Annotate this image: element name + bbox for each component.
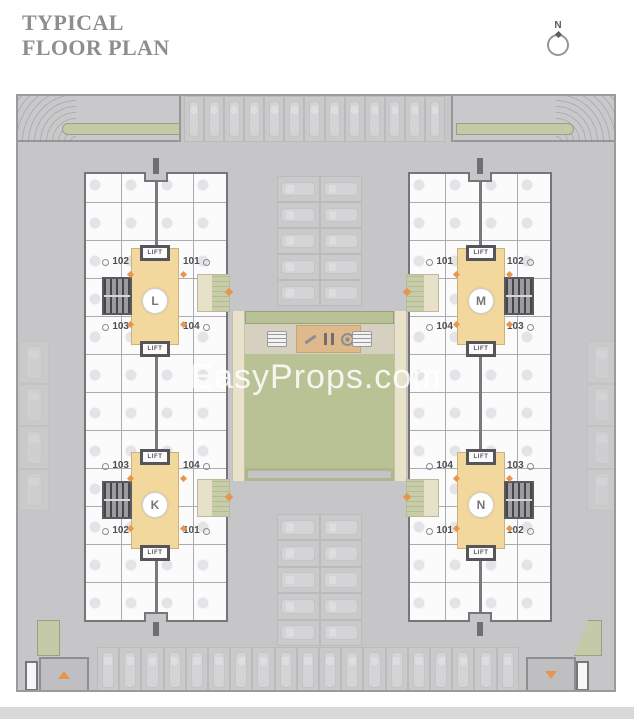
- green-strip-bottom-right: [574, 620, 602, 656]
- parking-stall: [320, 620, 363, 646]
- parking-stall: [474, 647, 496, 692]
- car-icon: [409, 101, 420, 138]
- parking-stall: [320, 202, 363, 228]
- car-icon: [435, 652, 447, 689]
- unit-number: 101: [183, 526, 225, 536]
- fixture-icon: [203, 528, 210, 535]
- car-icon: [289, 101, 300, 138]
- car-icon: [346, 652, 358, 689]
- fixture-icon: [426, 259, 433, 266]
- parking-stall: [497, 647, 519, 692]
- car-icon: [594, 431, 610, 464]
- parking-stall: [119, 647, 141, 692]
- parking-stall: [320, 514, 363, 540]
- car-icon: [257, 652, 269, 689]
- parking-stall: [19, 469, 49, 512]
- lift-box: LIFT: [466, 545, 496, 561]
- car-icon: [102, 652, 114, 689]
- parking-stall: [325, 96, 345, 142]
- car-icon: [480, 652, 492, 689]
- car-icon: [391, 652, 403, 689]
- car-icon: [430, 101, 441, 138]
- ramp-top-right: [451, 96, 614, 142]
- staircase-icon: [102, 277, 132, 315]
- green-strip-bottom-left: [37, 620, 60, 656]
- swing-icon: [324, 333, 334, 345]
- car-icon: [324, 599, 358, 614]
- car-icon: [209, 101, 220, 138]
- unit-number: 103: [87, 322, 129, 332]
- car-icon: [324, 260, 358, 275]
- parking-stall: [320, 593, 363, 619]
- unit-number: 104: [411, 461, 453, 471]
- car-icon: [26, 431, 42, 464]
- car-icon: [329, 101, 340, 138]
- ramp-arcs-icon: [18, 96, 76, 142]
- parking-stall: [345, 96, 365, 142]
- tower-letter: M: [476, 294, 486, 308]
- parking-stall: [277, 202, 320, 228]
- lift-label: LIFT: [147, 454, 162, 460]
- car-icon: [309, 101, 320, 138]
- car-icon: [324, 572, 358, 587]
- unit-number: 102: [87, 526, 129, 536]
- parking-stall: [97, 647, 119, 692]
- parking-grid-lower: [277, 514, 362, 646]
- unit-number: 101: [183, 257, 225, 267]
- watermark: EasyProps.com: [18, 358, 614, 397]
- lift-label: LIFT: [473, 346, 488, 352]
- car-icon: [281, 260, 315, 275]
- car-icon: [281, 625, 315, 640]
- green-walkway-top-left: [62, 123, 180, 135]
- unit-number: 104: [183, 461, 225, 471]
- car-icon: [281, 182, 315, 197]
- fixture-icon: [102, 463, 109, 470]
- car-icon: [594, 473, 610, 506]
- lift-label: LIFT: [147, 250, 162, 256]
- tower-letter: L: [151, 294, 158, 308]
- fixture-icon: [102, 324, 109, 331]
- car-icon: [389, 101, 400, 138]
- unit-number: 104: [183, 322, 225, 332]
- staircase-icon: [504, 481, 534, 519]
- unit-number: 104: [411, 322, 453, 332]
- parking-stall: [430, 647, 452, 692]
- car-icon: [324, 182, 358, 197]
- parking-stall: [208, 647, 230, 692]
- entrance-stub: [477, 622, 483, 636]
- parking-stall: [385, 96, 405, 142]
- fixture-icon: [426, 528, 433, 535]
- parking-stall: [141, 647, 163, 692]
- lift-box: LIFT: [140, 449, 170, 465]
- play-area: [245, 324, 394, 354]
- lift-box: LIFT: [140, 341, 170, 357]
- tower-badge: L: [142, 288, 168, 314]
- footer-band: [0, 707, 634, 719]
- parking-stall: [277, 620, 320, 646]
- title-line2: FLOOR PLAN: [22, 35, 170, 60]
- parking-column: [277, 514, 320, 646]
- entry-arrow-up-icon: [58, 671, 70, 679]
- parking-stall: [252, 647, 274, 692]
- parking-stall: [277, 254, 320, 280]
- parking-grid-upper: [277, 176, 362, 306]
- door-marker-icon: [180, 271, 187, 278]
- unit-number: 102: [87, 257, 129, 267]
- fixture-icon: [102, 259, 109, 266]
- car-icon: [26, 473, 42, 506]
- parking-stall: [320, 567, 363, 593]
- car-icon: [269, 101, 280, 138]
- parking-stall: [587, 469, 616, 512]
- car-icon: [213, 652, 225, 689]
- page-title: TYPICAL FLOOR PLAN: [22, 10, 170, 60]
- parking-stall: [204, 96, 224, 142]
- parking-stall: [184, 96, 204, 142]
- gate-post: [576, 661, 589, 691]
- parking-stall: [284, 96, 304, 142]
- fixture-icon: [102, 528, 109, 535]
- fixture-icon: [426, 463, 433, 470]
- courtyard-walkway-bottom: [245, 468, 394, 481]
- parking-stall: [341, 647, 363, 692]
- parking-stall: [244, 96, 264, 142]
- tower-core-K: LIFT LIFT K 103 104 102 101: [84, 448, 228, 562]
- car-icon: [281, 546, 315, 561]
- lift-box: LIFT: [466, 245, 496, 261]
- car-icon: [281, 599, 315, 614]
- fixture-icon: [203, 324, 210, 331]
- parking-stall: [320, 280, 363, 306]
- ramp-top-left: [18, 96, 181, 142]
- floor-plan-page: TYPICAL FLOOR PLAN N: [0, 0, 634, 719]
- tower-core-N: LIFT LIFT N 104 103 101 102: [408, 448, 552, 562]
- car-icon: [349, 101, 360, 138]
- car-icon: [146, 652, 158, 689]
- courtyard-walkway-top: [245, 311, 394, 324]
- car-icon: [324, 520, 358, 535]
- parking-stall: [277, 228, 320, 254]
- parking-stall: [365, 96, 385, 142]
- parking-row-bottom: [97, 647, 519, 692]
- parking-stall: [320, 176, 363, 202]
- parking-stall: [164, 647, 186, 692]
- staircase-icon: [504, 277, 534, 315]
- parking-stall: [408, 647, 430, 692]
- tower-badge: N: [468, 492, 494, 518]
- parking-stall: [277, 176, 320, 202]
- lift-box: LIFT: [140, 245, 170, 261]
- bench-icon: [352, 331, 372, 347]
- parking-stall: [19, 426, 49, 469]
- car-icon: [191, 652, 203, 689]
- car-icon: [324, 625, 358, 640]
- parking-stall: [452, 647, 474, 692]
- car-icon: [457, 652, 469, 689]
- car-icon: [281, 234, 315, 249]
- parking-stall: [363, 647, 385, 692]
- unit-number: 101: [411, 526, 453, 536]
- title-line1: TYPICAL: [22, 10, 170, 35]
- tower-core-M: LIFT LIFT M 101 102 104 103: [408, 244, 552, 358]
- parking-stall: [320, 228, 363, 254]
- car-icon: [281, 208, 315, 223]
- fixture-icon: [426, 324, 433, 331]
- car-icon: [281, 520, 315, 535]
- parking-row-top: [184, 96, 445, 142]
- tower-letter: N: [477, 498, 486, 512]
- fixture-icon: [203, 259, 210, 266]
- fixture-icon: [203, 463, 210, 470]
- parking-stall: [425, 96, 445, 142]
- parking-stall: [277, 567, 320, 593]
- parking-stall: [320, 254, 363, 280]
- parking-stall: [230, 647, 252, 692]
- tower-core-L: LIFT LIFT L 102 101 103 104: [84, 244, 228, 358]
- parking-stall: [304, 96, 324, 142]
- green-walkway-top-right: [456, 123, 574, 135]
- car-icon: [280, 652, 292, 689]
- car-icon: [281, 286, 315, 301]
- lift-label: LIFT: [473, 550, 488, 556]
- ramp-arcs-icon: [556, 96, 614, 142]
- car-icon: [169, 652, 181, 689]
- parking-stall: [277, 540, 320, 566]
- parking-stall: [186, 647, 208, 692]
- car-icon: [281, 572, 315, 587]
- parking-column: [320, 176, 363, 306]
- lift-box: LIFT: [466, 449, 496, 465]
- entrance-stub: [153, 158, 159, 174]
- entry-gate-left: [39, 657, 89, 692]
- car-icon: [324, 652, 336, 689]
- staircase-icon: [102, 481, 132, 519]
- tower-badge: K: [142, 492, 168, 518]
- entrance-stub: [153, 622, 159, 636]
- lift-box: LIFT: [466, 341, 496, 357]
- unit-number: 102: [507, 257, 549, 267]
- north-compass: N: [543, 20, 573, 56]
- car-icon: [124, 652, 136, 689]
- parking-column: [320, 514, 363, 646]
- parking-stall: [320, 540, 363, 566]
- parking-stall: [224, 96, 244, 142]
- slide-icon: [304, 334, 316, 344]
- car-icon: [413, 652, 425, 689]
- fixture-icon: [527, 324, 534, 331]
- lift-label: LIFT: [473, 250, 488, 256]
- unit-number: 101: [411, 257, 453, 267]
- building-notch: [468, 612, 492, 622]
- unit-number: 103: [507, 461, 549, 471]
- door-marker-icon: [180, 475, 187, 482]
- parking-stall: [297, 647, 319, 692]
- car-icon: [189, 101, 200, 138]
- unit-number: 103: [507, 322, 549, 332]
- site-plan: LIFT LIFT L 102 101 103 104 LIFT LIFT M …: [16, 94, 616, 692]
- bench-icon: [267, 331, 287, 347]
- car-icon: [249, 101, 260, 138]
- parking-stall: [277, 280, 320, 306]
- car-icon: [302, 652, 314, 689]
- car-icon: [369, 101, 380, 138]
- parking-stall: [386, 647, 408, 692]
- unit-number: 103: [87, 461, 129, 471]
- parking-stall: [277, 514, 320, 540]
- lift-label: LIFT: [147, 550, 162, 556]
- parking-column: [277, 176, 320, 306]
- compass-needle-icon: [555, 31, 562, 38]
- parking-stall: [319, 647, 341, 692]
- lift-box: LIFT: [140, 545, 170, 561]
- car-icon: [235, 652, 247, 689]
- car-icon: [368, 652, 380, 689]
- building-notch: [144, 612, 168, 622]
- lift-label: LIFT: [473, 454, 488, 460]
- north-label: N: [543, 20, 573, 31]
- car-icon: [324, 546, 358, 561]
- parking-stall: [264, 96, 284, 142]
- car-icon: [324, 286, 358, 301]
- lift-label: LIFT: [147, 346, 162, 352]
- entrance-stub: [477, 158, 483, 174]
- fixture-icon: [527, 259, 534, 266]
- car-icon: [502, 652, 514, 689]
- gate-post: [25, 661, 38, 691]
- parking-stall: [587, 426, 616, 469]
- car-icon: [324, 208, 358, 223]
- entry-gate-right: [526, 657, 576, 692]
- fixture-icon: [527, 463, 534, 470]
- parking-stall: [277, 593, 320, 619]
- tower-badge: M: [468, 288, 494, 314]
- parking-stall: [405, 96, 425, 142]
- fixture-icon: [527, 528, 534, 535]
- compass-circle-icon: [547, 34, 569, 56]
- entry-arrow-down-icon: [545, 671, 557, 679]
- tower-letter: K: [151, 498, 160, 512]
- unit-number: 102: [507, 526, 549, 536]
- parking-stall: [275, 647, 297, 692]
- car-icon: [324, 234, 358, 249]
- car-icon: [229, 101, 240, 138]
